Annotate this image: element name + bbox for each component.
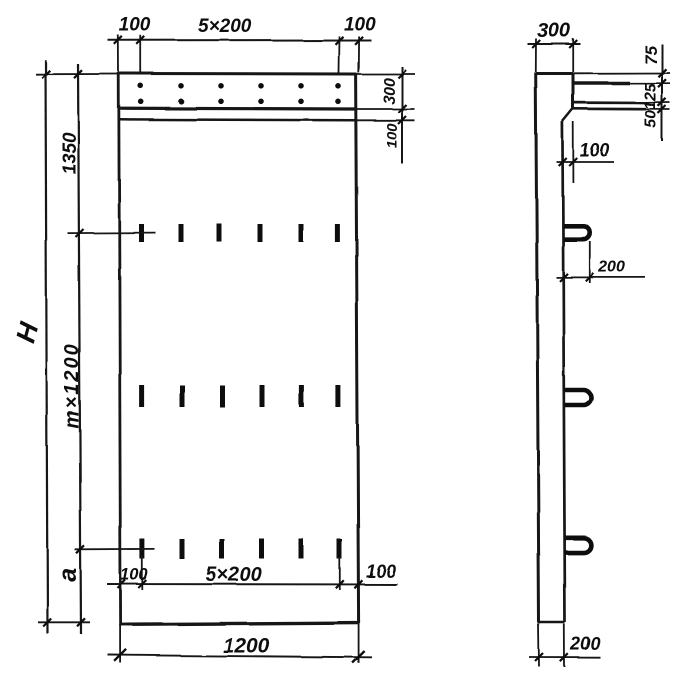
svg-text:100: 100 xyxy=(384,122,401,148)
svg-text:5×200: 5×200 xyxy=(206,564,262,586)
svg-text:100: 100 xyxy=(119,15,151,36)
svg-text:300: 300 xyxy=(382,77,399,104)
svg-text:300: 300 xyxy=(537,20,570,42)
svg-text:5×200: 5×200 xyxy=(198,16,252,37)
svg-text:100: 100 xyxy=(366,562,396,582)
svg-text:200: 200 xyxy=(569,634,600,654)
svg-text:a: a xyxy=(54,568,82,582)
svg-text:H: H xyxy=(10,319,44,346)
svg-text:1350: 1350 xyxy=(60,131,81,174)
svg-text:125: 125 xyxy=(643,82,660,110)
svg-text:100: 100 xyxy=(121,566,149,584)
svg-text:75: 75 xyxy=(642,45,661,64)
svg-text:m×1200: m×1200 xyxy=(62,343,84,429)
svg-text:50: 50 xyxy=(643,110,660,128)
svg-text:200: 200 xyxy=(598,259,626,276)
svg-text:100: 100 xyxy=(343,14,375,35)
svg-text:1200: 1200 xyxy=(223,635,270,658)
svg-text:100: 100 xyxy=(580,141,610,161)
